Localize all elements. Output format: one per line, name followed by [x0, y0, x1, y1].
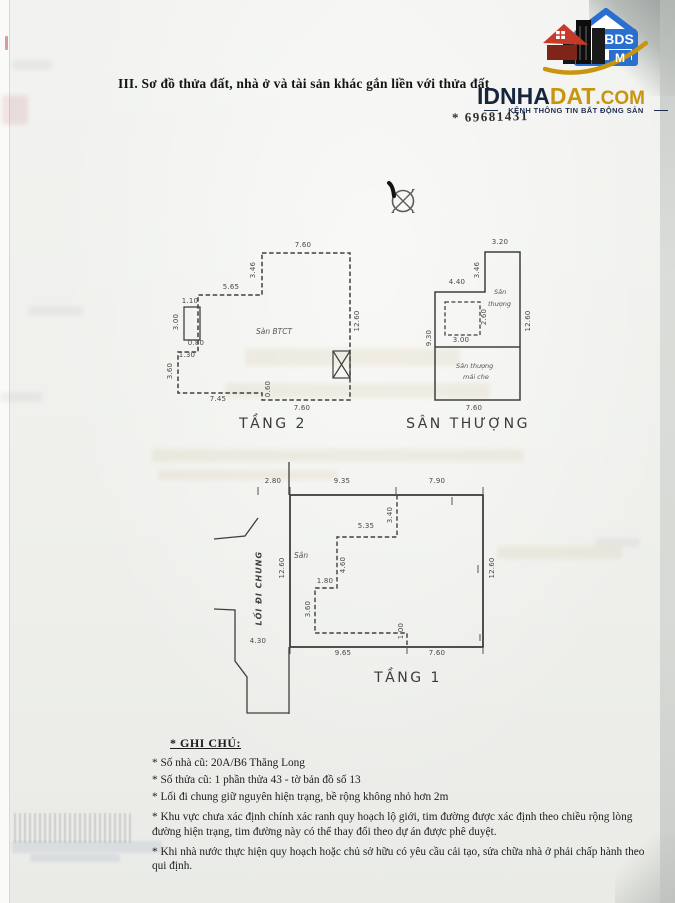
dim-label: 2.60 [480, 302, 488, 332]
dim-label: 0.80 [181, 339, 211, 347]
san-thuong-title: SÂN THƯỢNG [403, 416, 533, 432]
dim-label: 1.10 [175, 297, 205, 305]
dim-label: 7.60 [459, 404, 489, 412]
tang2-room-label: Sàn BTCT [256, 327, 292, 336]
san-thuong-lower-label: mái che [463, 373, 489, 381]
note-item: * Số nhà cũ: 20A/B6 Thăng Long [152, 756, 650, 771]
dim-label: 7.60 [287, 404, 317, 412]
dim-label: 1.00 [397, 616, 405, 646]
dim-label: 12.60 [524, 306, 532, 336]
dim-label: 12.60 [353, 306, 361, 336]
dim-label: 2.80 [258, 477, 288, 485]
dim-label: 4.40 [442, 278, 472, 286]
dim-label: 3.00 [446, 336, 476, 344]
common-path-lines [214, 462, 289, 714]
dim-label: 4.30 [243, 637, 273, 645]
tang2-stair-void [333, 351, 350, 378]
north-arrow-icon [389, 183, 415, 213]
dim-label: 12.60 [488, 553, 496, 583]
tang1-room-label: Sân [294, 551, 308, 560]
dimension-ticks [258, 487, 483, 654]
dim-label: 1.80 [310, 577, 340, 585]
dim-label: 7.60 [288, 241, 318, 249]
dim-label: 3.60 [304, 594, 312, 624]
dim-label: 7.90 [422, 477, 452, 485]
dim-label: 9.35 [327, 477, 357, 485]
dim-label: 9.65 [328, 649, 358, 657]
san-thuong-skylight [445, 302, 480, 335]
dim-label: 5.35 [351, 522, 381, 530]
notes-heading: * GHI CHÚ: [170, 736, 650, 751]
note-item: * Số thửa cũ: 1 phần thửa 43 - tờ bản đồ… [152, 773, 650, 788]
san-thuong-upper-label: thượng [488, 300, 511, 308]
dim-label: 3.46 [249, 255, 257, 285]
san-thuong-lower-label: Sân thượng [456, 362, 493, 370]
dim-label: 12.60 [278, 553, 286, 583]
san-thuong-upper-label: Sân [494, 288, 506, 296]
dim-label: 7.60 [422, 649, 452, 657]
tang1-title: TẦNG 1 [353, 670, 463, 686]
tang2-title: TẦNG 2 [228, 416, 318, 432]
common-path-label: LỐI ĐI CHUNG [255, 556, 264, 626]
dim-label: 5.65 [216, 283, 246, 291]
dim-label: 3.20 [485, 238, 515, 246]
dim-label: 7.45 [203, 395, 233, 403]
dim-label: 4.60 [339, 550, 347, 580]
note-item: * Lối đi chung giữ nguyên hiện trạng, bề… [152, 790, 650, 805]
note-item: * Khi nhà nước thực hiện quy hoạch hoặc … [152, 845, 650, 875]
document-page: III. Sơ đồ thửa đất, nhà ở và tài sản kh… [0, 0, 675, 903]
dim-label: 1.30 [172, 351, 202, 359]
dim-label: 3.40 [386, 500, 394, 530]
dim-label: 3.46 [473, 255, 481, 285]
dim-label: 3.60 [166, 356, 174, 386]
note-item: * Khu vực chưa xác định chính xác ranh q… [152, 810, 650, 840]
dim-label: 9.30 [425, 323, 433, 353]
dim-label: 0.60 [264, 374, 272, 404]
notes-section: * GHI CHÚ: * Số nhà cũ: 20A/B6 Thăng Lon… [152, 736, 650, 876]
dim-label: 3.00 [172, 307, 180, 337]
